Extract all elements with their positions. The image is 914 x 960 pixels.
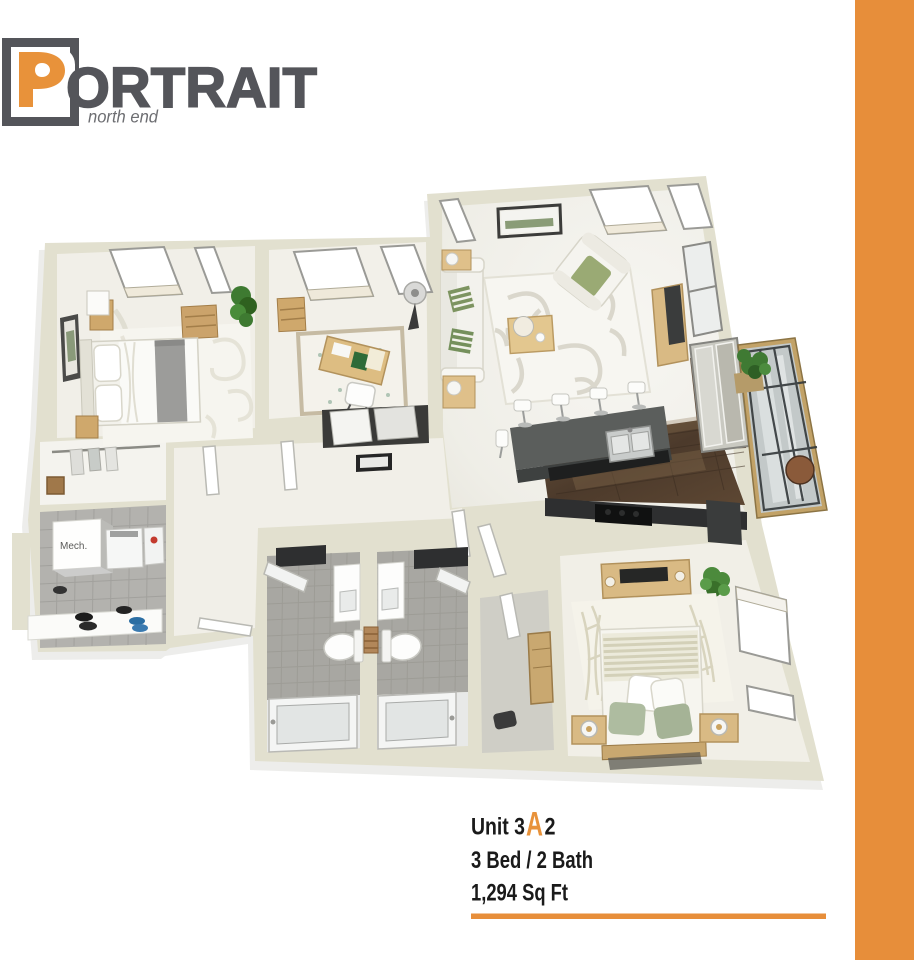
svg-text:3 Bed / 2 Bath: 3 Bed / 2 Bath bbox=[471, 847, 593, 874]
svg-text:2: 2 bbox=[545, 814, 556, 841]
svg-text:1,294 Sq Ft: 1,294 Sq Ft bbox=[471, 880, 568, 907]
svg-text:Unit 3: Unit 3 bbox=[471, 814, 525, 841]
svg-text:Mech.: Mech. bbox=[60, 541, 87, 552]
svg-text:north end: north end bbox=[88, 107, 159, 127]
svg-text:A: A bbox=[526, 806, 543, 844]
